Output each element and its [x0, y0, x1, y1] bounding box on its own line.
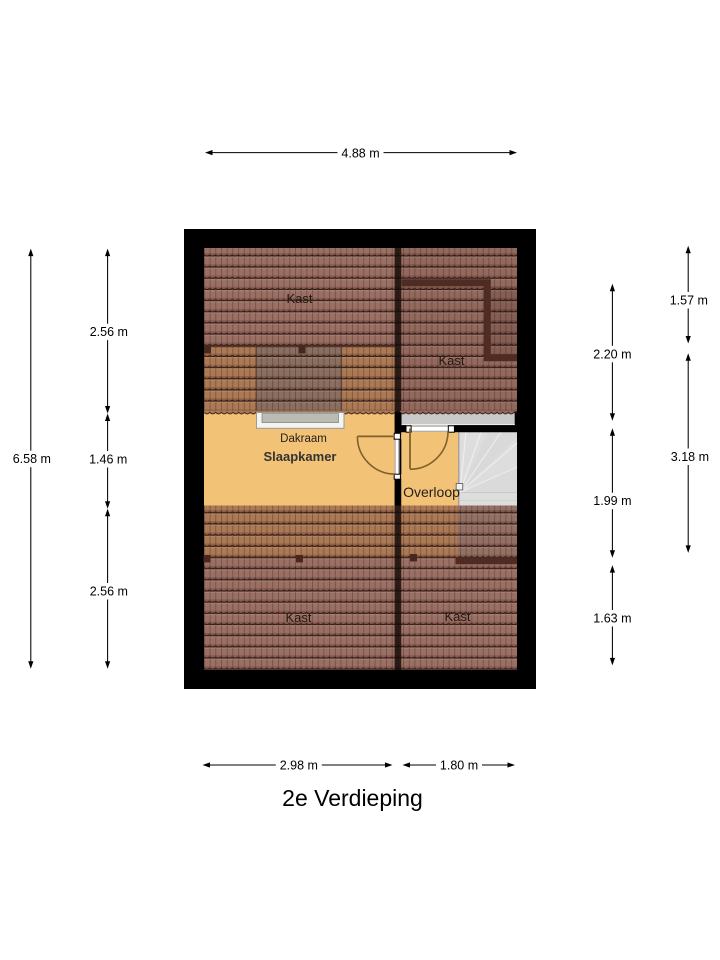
svg-text:1.46 m: 1.46 m	[89, 453, 127, 467]
svg-text:Kast: Kast	[286, 291, 312, 306]
svg-text:4.88 m: 4.88 m	[341, 146, 379, 160]
svg-text:Kast: Kast	[285, 610, 311, 625]
svg-text:2e Verdieping: 2e Verdieping	[282, 785, 423, 811]
svg-text:3.18 m: 3.18 m	[671, 450, 709, 464]
svg-text:Slaapkamer: Slaapkamer	[264, 449, 337, 464]
svg-text:Overloop: Overloop	[403, 484, 460, 500]
svg-text:1.80 m: 1.80 m	[440, 759, 478, 773]
svg-text:Kast: Kast	[444, 609, 470, 624]
svg-text:6.58 m: 6.58 m	[13, 452, 51, 466]
svg-text:1.63 m: 1.63 m	[593, 612, 631, 626]
svg-text:Kast: Kast	[438, 353, 464, 368]
svg-text:2.56 m: 2.56 m	[90, 585, 128, 599]
svg-text:2.20 m: 2.20 m	[593, 347, 631, 361]
svg-text:2.98 m: 2.98 m	[280, 759, 318, 773]
svg-text:1.99 m: 1.99 m	[593, 494, 631, 508]
svg-text:2.56 m: 2.56 m	[90, 325, 128, 339]
svg-text:1.57 m: 1.57 m	[670, 294, 708, 308]
svg-text:Dakraam: Dakraam	[280, 433, 327, 445]
